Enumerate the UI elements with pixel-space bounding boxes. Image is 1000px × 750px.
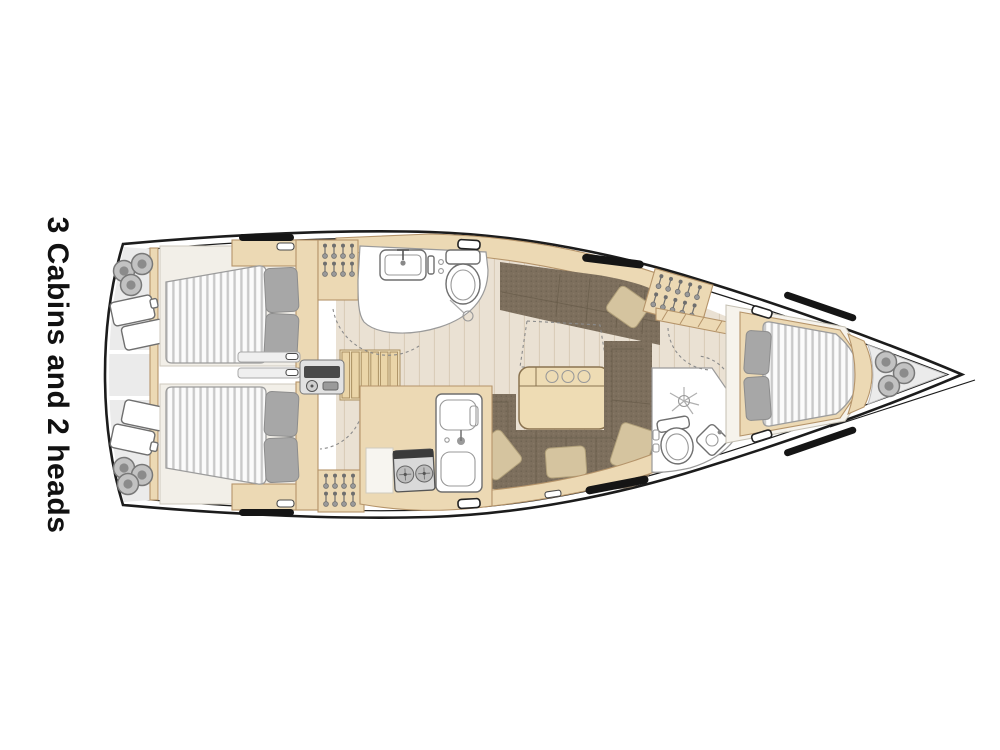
stern-bulkhead	[150, 248, 158, 500]
electrical-panel	[300, 360, 344, 394]
cabin-wardrobe	[296, 240, 318, 368]
hatch-latch	[277, 500, 294, 507]
cabin-wardrobe	[296, 382, 318, 510]
pillow	[264, 391, 299, 437]
forward-cabin	[726, 291, 946, 457]
stove	[393, 449, 435, 492]
hull-window	[239, 509, 294, 516]
boat-floorplan-image: 3 Cabins and 2 heads	[0, 0, 1000, 750]
galley	[360, 386, 492, 510]
deck-hatch	[458, 239, 480, 249]
galley-double-sink	[436, 394, 482, 492]
towel-rail	[428, 256, 434, 274]
hatch-latch	[277, 243, 294, 250]
deck-hatch	[458, 498, 480, 508]
galley-floor	[366, 448, 393, 493]
double-bed-mattress	[166, 387, 266, 484]
sink	[380, 250, 426, 280]
pillow	[744, 376, 772, 421]
pillow	[744, 330, 772, 375]
pillow	[264, 437, 299, 483]
pillow	[264, 267, 299, 313]
floorplan-drawing	[0, 0, 1000, 750]
settee-pillow	[545, 446, 587, 479]
double-bed-mattress	[166, 266, 266, 363]
hull-window	[239, 234, 294, 241]
